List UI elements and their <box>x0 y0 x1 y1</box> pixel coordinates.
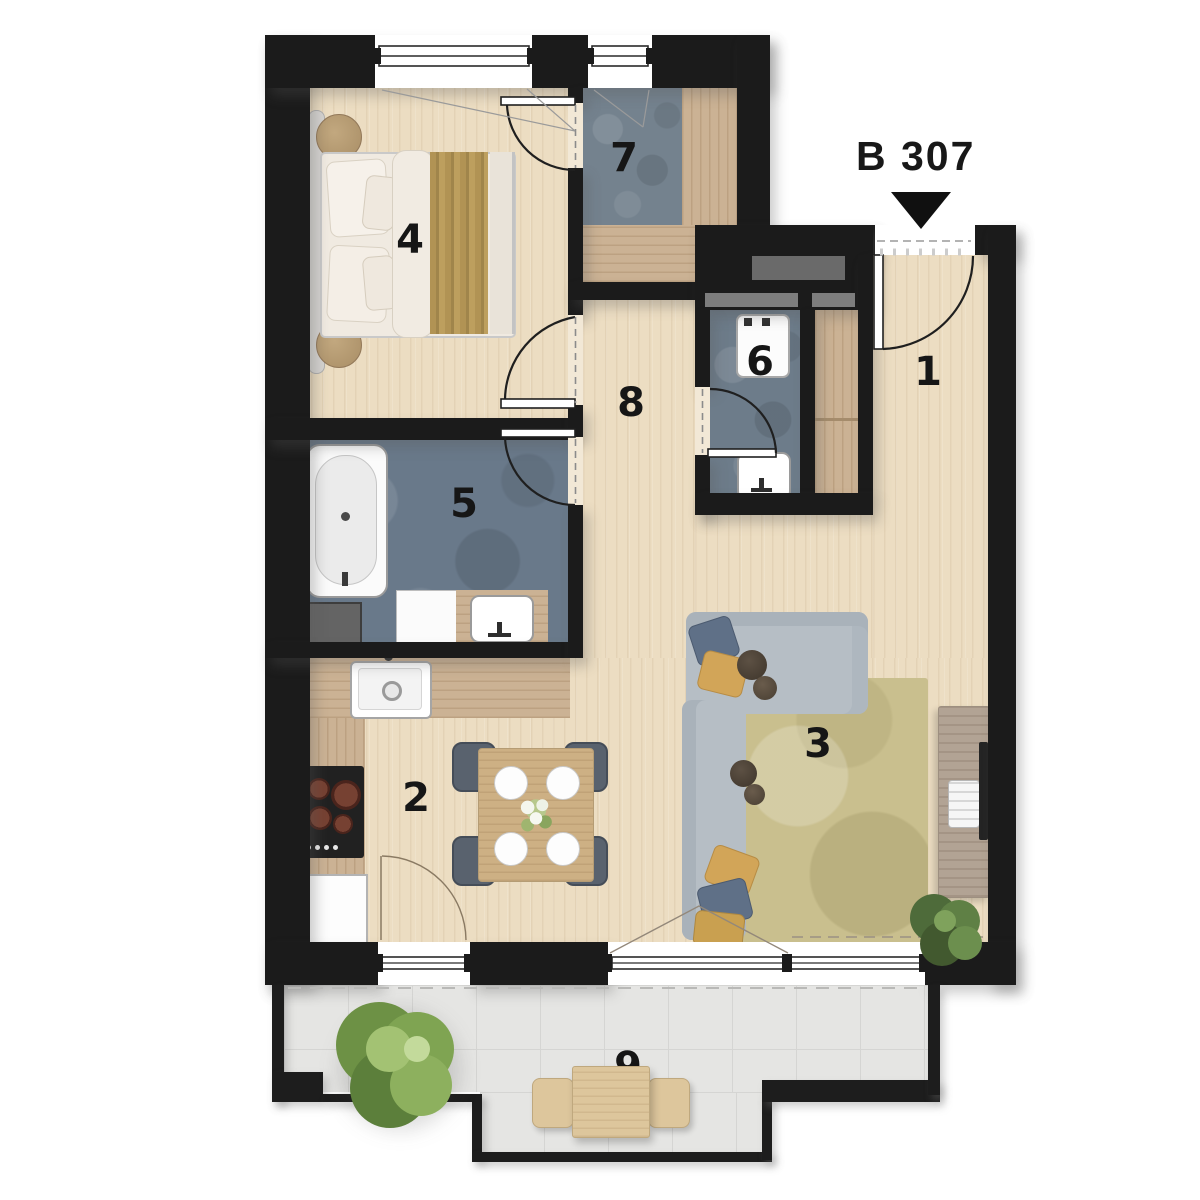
kitchen-counter-top <box>300 658 570 718</box>
bedroom-wardrobe-door-opening <box>568 103 583 168</box>
wall-right <box>988 225 1016 985</box>
room-label-4: 4 <box>396 217 424 263</box>
hallway-floor <box>583 300 695 658</box>
bedroom-door-opening <box>568 315 583 405</box>
terrace-stool-left <box>532 1078 574 1128</box>
shaft-1 <box>752 256 845 280</box>
entrance-wardrobe-divider <box>815 418 858 421</box>
entrance-hall-floor <box>873 255 988 658</box>
wall-bottom-b <box>470 942 608 985</box>
terrace-wall-right <box>928 985 940 1095</box>
bathtub-drain <box>341 512 350 521</box>
fridge <box>300 874 368 946</box>
wc-basin-tap-bar-icon <box>751 488 772 492</box>
room-label-7: 7 <box>610 135 638 181</box>
shaft-2 <box>705 293 798 307</box>
terrace-plant-icon <box>326 996 474 1144</box>
unit-label: B 307 <box>856 133 975 180</box>
tv-screen <box>979 742 988 840</box>
terrace-stool-right <box>648 1078 690 1128</box>
wall-bed-hall-3 <box>568 405 583 437</box>
wall-wc-wardrobe <box>800 310 815 495</box>
wall-bath-kitchen <box>265 642 568 658</box>
bedroom-window-opening <box>375 35 532 88</box>
bathroom-sink-tap-bar-icon <box>488 633 511 637</box>
plate-4 <box>546 832 580 866</box>
washing-machine-knob-2 <box>762 318 770 326</box>
burner-2 <box>331 780 361 810</box>
terrace-wall-bottom <box>472 1152 772 1162</box>
living-window-opening <box>608 942 925 985</box>
terrace-wall-step-up <box>762 1094 772 1160</box>
entrance-wardrobe <box>815 310 858 493</box>
washing-machine-knob-1 <box>744 318 752 326</box>
shaft-3 <box>812 293 855 307</box>
kitchen-balcony-door-opening <box>378 942 470 985</box>
burner-4 <box>333 814 353 834</box>
room-label-6: 6 <box>746 339 774 385</box>
bathroom-door-opening <box>568 437 583 505</box>
cooktop-knob-3 <box>324 845 329 850</box>
sofa-side-table-2 <box>753 676 777 700</box>
tv-remote <box>948 780 980 828</box>
wardrobe-window-opening <box>588 35 652 88</box>
table-centerpiece <box>515 792 557 836</box>
bed-footboard <box>490 152 515 334</box>
wall-top-right-vertical <box>737 35 770 255</box>
terrace-table <box>572 1066 650 1138</box>
room-label-2: 2 <box>402 775 430 821</box>
wall-bedroom-bath <box>265 418 568 440</box>
wall-left <box>265 35 310 985</box>
bed-blanket <box>430 152 488 334</box>
entrance-marker-icon <box>891 192 951 229</box>
room-label-1: 1 <box>914 349 942 395</box>
kitchen-sink-drain <box>382 681 402 701</box>
bathroom-cabinet <box>396 590 458 644</box>
bathtub-tap-icon <box>342 572 348 586</box>
wall-bath-hall <box>568 505 583 658</box>
wall-wc-bottom <box>695 493 873 515</box>
rug <box>742 678 928 958</box>
burner-3 <box>308 806 332 830</box>
room-label-5: 5 <box>450 481 478 527</box>
sofa-side-table-4 <box>744 784 765 805</box>
sofa-side-table-3 <box>730 760 757 787</box>
burner-1 <box>308 778 330 800</box>
cooktop-knob-2 <box>315 845 320 850</box>
floor-plan: B 307 1 2 3 4 5 6 7 8 9 <box>0 0 1200 1200</box>
wc-door-opening <box>695 387 710 455</box>
plate-3 <box>494 832 528 866</box>
terrace-wall-left-foot <box>272 1072 323 1102</box>
cooktop-knob-4 <box>333 845 338 850</box>
wardrobe-cabinet-right <box>682 88 737 225</box>
room-label-8: 8 <box>617 380 645 426</box>
wall-wardrobe-entrance <box>858 255 873 497</box>
living-plant-icon <box>904 890 988 970</box>
entrance-door-opening <box>875 225 975 255</box>
room-label-3: 3 <box>804 721 832 767</box>
wall-wc-left-upper <box>695 310 710 387</box>
wall-bottom-a <box>265 942 378 985</box>
terrace-wall-edge-b <box>762 1080 940 1102</box>
wall-bed-hall-1 <box>568 88 583 103</box>
